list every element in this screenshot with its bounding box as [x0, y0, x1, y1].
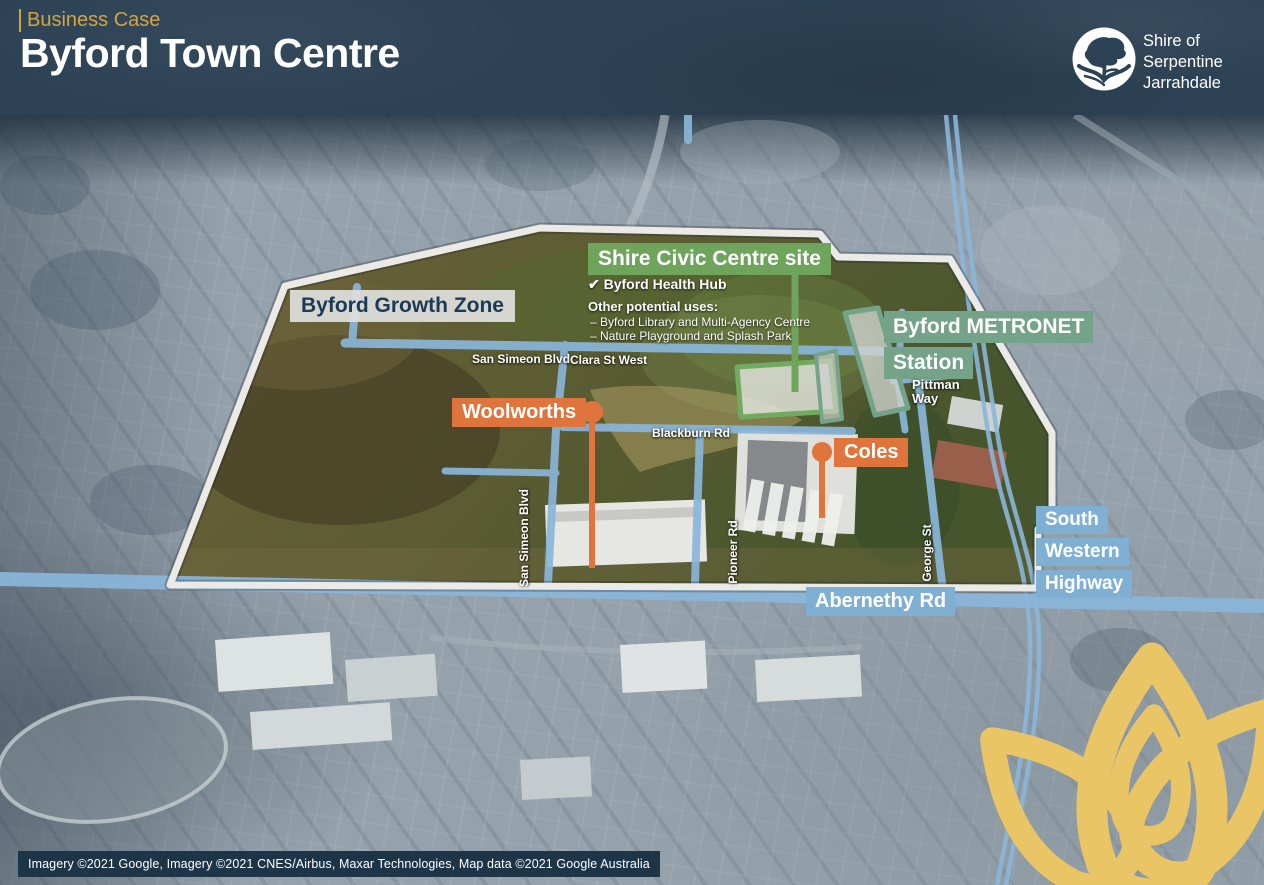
growth-zone-label: Byford Growth Zone: [290, 290, 515, 322]
org-line-1: Shire of: [1143, 31, 1223, 52]
road-label-blackburn: Blackburn Rd: [652, 426, 730, 440]
road-label-george: George St: [920, 524, 934, 581]
road-label-san-simeon-v: San Simeon Blvd: [517, 489, 531, 587]
civic-other-item: – Byford Library and Multi-Agency Centre: [590, 315, 810, 329]
abernethy-label: Abernethy Rd: [806, 587, 955, 616]
road-label-pittman: Pittman Way: [912, 378, 960, 406]
org-line-2: Serpentine: [1143, 52, 1223, 73]
civic-other-item: – Nature Playground and Splash Park: [590, 329, 791, 343]
org-name: Shire of Serpentine Jarrahdale: [1143, 31, 1223, 94]
metronet-station-label: Byford METRONET Station: [884, 311, 1093, 379]
road-label-pioneer: Pioneer Rd: [726, 520, 740, 583]
header-bar: Business Case Byford Town Centre Shire o…: [0, 0, 1264, 115]
civic-site-label: Shire Civic Centre site: [588, 243, 831, 275]
aerial-map: [0, 115, 1264, 885]
shire-logo-icon: [1071, 26, 1137, 92]
check-icon: ✔: [588, 276, 600, 292]
civic-health-hub: ✔ Byford Health Hub: [588, 276, 727, 293]
page-title: Byford Town Centre: [20, 30, 400, 77]
org-line-3: Jarrahdale: [1143, 73, 1223, 94]
map-attribution: Imagery ©2021 Google, Imagery ©2021 CNES…: [18, 851, 660, 877]
woolworths-label: Woolworths: [452, 398, 586, 427]
road-label-san-simeon-h: San Simeon Blvd: [472, 352, 570, 366]
south-western-highway-label: South Western Highway: [1036, 506, 1132, 598]
civic-other-heading: Other potential uses:: [588, 299, 718, 314]
road-label-clara: Clara St West: [570, 353, 647, 367]
eyebrow-label: Business Case: [19, 9, 160, 32]
coles-label: Coles: [834, 438, 908, 467]
slide: Business Case Byford Town Centre Shire o…: [0, 0, 1264, 885]
